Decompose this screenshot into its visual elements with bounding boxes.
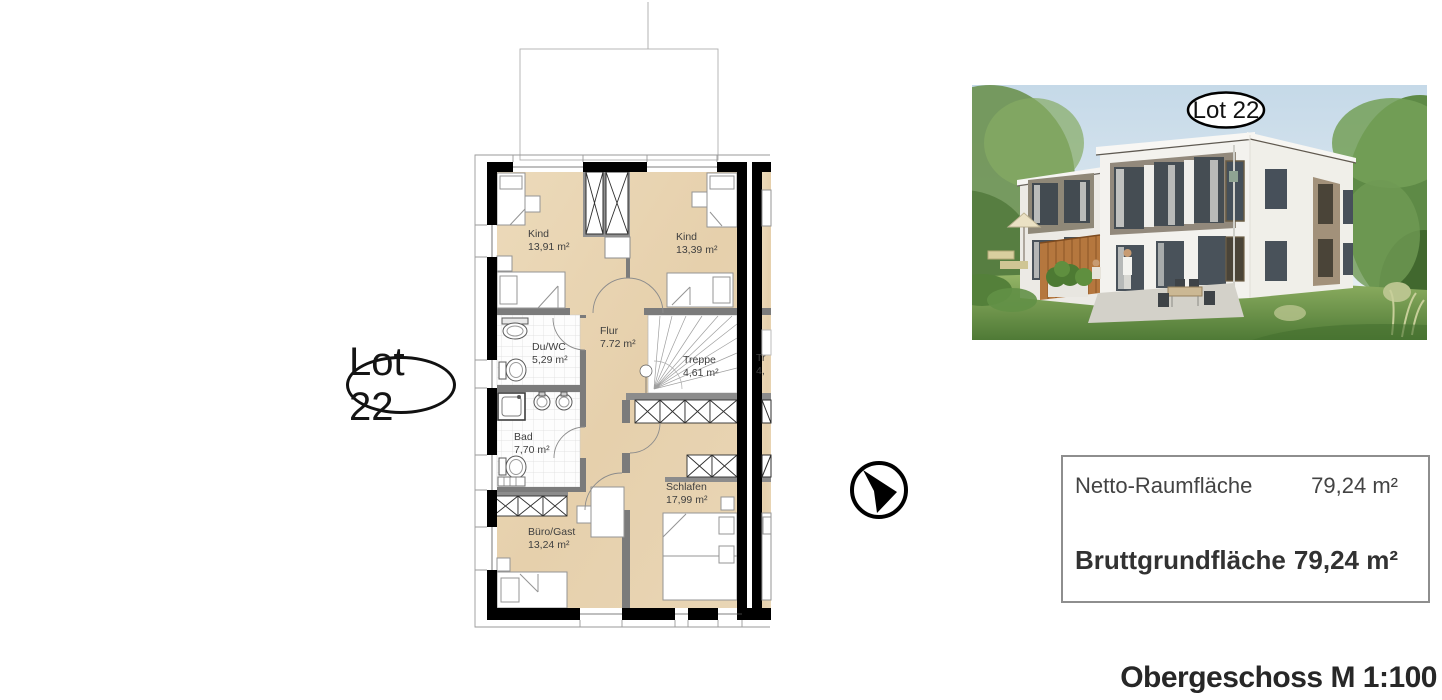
row-value: 79,24 m² — [1294, 545, 1398, 576]
room-name: Flur — [600, 325, 636, 338]
room-label-duwc: Du/WC 5,29 m² — [532, 341, 568, 367]
side-table — [497, 558, 510, 571]
room-label-kind-left: Kind 13,91 m² — [528, 228, 569, 254]
radiator — [498, 477, 525, 486]
room-area: 13,39 m² — [676, 244, 717, 257]
row-label: Bruttgrundfläche — [1075, 545, 1286, 576]
lot-number-text: Lot 22 — [349, 340, 453, 430]
plan-sheet: Kind 13,91 m² Kind 13,39 m² Flur 7.72 m²… — [0, 0, 1442, 700]
lot-number-text: Lot 22 — [1193, 97, 1260, 124]
room-label-kind-right: Kind 13,39 m² — [676, 231, 717, 257]
floor-plan-drawing — [460, 0, 810, 645]
row-label: Netto-Raumfläche — [1075, 473, 1252, 499]
room-label-buero-gast: Büro/Gast 13,24 m² — [528, 526, 575, 552]
person — [1092, 267, 1101, 279]
room-name: Bad — [514, 431, 550, 444]
lot-number-badge: Lot 22 — [1188, 93, 1264, 128]
room-area: 7.72 m² — [600, 338, 636, 351]
party-wall — [752, 162, 762, 620]
area-summary-table: Netto-Raumfläche 79,24 m² Bruttgrundfläc… — [1061, 455, 1430, 603]
party-wall — [737, 162, 747, 620]
toilet — [499, 458, 506, 475]
chair — [577, 506, 591, 523]
toilet — [499, 362, 506, 379]
side-table — [721, 497, 734, 510]
person — [1123, 257, 1132, 275]
lot-number-badge: Lot 22 — [346, 356, 456, 414]
lounger — [1000, 261, 1028, 269]
room-area: 5,29 m² — [532, 354, 568, 367]
room-name: Treppe — [683, 354, 719, 367]
room-label-neighbor-clipped: Tr 4, — [756, 352, 770, 378]
room-area: 4, — [756, 365, 770, 378]
room-label-treppe: Treppe 4,61 m² — [683, 354, 719, 380]
side-table — [692, 192, 707, 207]
table-row-netto: Netto-Raumfläche 79,24 m² — [1075, 473, 1398, 499]
room-name: Kind — [528, 228, 569, 241]
room-name: Tr — [756, 352, 770, 365]
house-rendering: Lot 22 — [972, 85, 1427, 340]
desk — [591, 487, 624, 537]
stair-newel — [640, 365, 652, 377]
room-area: 13,24 m² — [528, 539, 575, 552]
room-name: Schlafen — [666, 481, 707, 494]
lounger — [988, 251, 1014, 259]
room-name: Du/WC — [532, 341, 568, 354]
side-table — [497, 256, 512, 271]
room-area: 17,99 m² — [666, 494, 707, 507]
room-label-schlafen: Schlafen 17,99 m² — [666, 481, 707, 507]
room-name: Kind — [676, 231, 717, 244]
row-value: 79,24 m² — [1311, 473, 1398, 499]
room-area: 13,91 m² — [528, 241, 569, 254]
north-arrow-icon — [848, 458, 912, 522]
room-label-bad: Bad 7,70 m² — [514, 431, 550, 457]
sheet-caption: Obergeschoss M 1:100 — [1120, 661, 1437, 695]
table-row-brutto: Bruttgrundfläche 79,24 m² — [1075, 545, 1398, 576]
room-area: 7,70 m² — [514, 444, 550, 457]
side-table — [525, 196, 540, 212]
room-label-flur: Flur 7.72 m² — [600, 325, 636, 351]
garden-table — [1168, 287, 1202, 296]
room-name: Büro/Gast — [528, 526, 575, 539]
room-area: 4,61 m² — [683, 367, 719, 380]
